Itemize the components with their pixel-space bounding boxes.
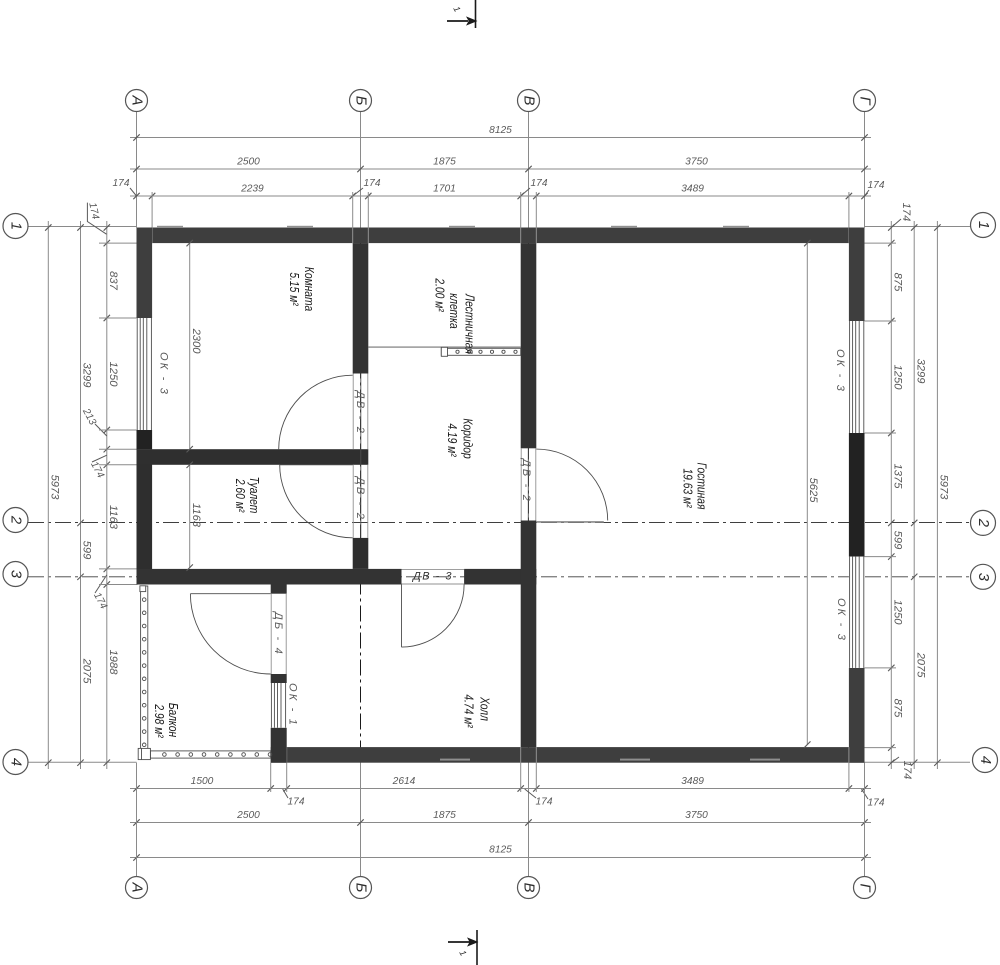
svg-text:2500: 2500 <box>236 810 260 821</box>
svg-text:2239: 2239 <box>240 184 264 195</box>
svg-text:Г: Г <box>857 883 873 892</box>
svg-text:Лестничная: Лестничная <box>462 293 478 354</box>
svg-text:ОК - 3: ОК - 3 <box>835 598 847 642</box>
svg-text:174: 174 <box>288 797 305 808</box>
svg-text:174: 174 <box>364 178 381 189</box>
svg-text:1250: 1250 <box>107 362 119 388</box>
svg-text:1163: 1163 <box>107 505 119 530</box>
svg-text:3489: 3489 <box>681 184 704 195</box>
svg-text:1701: 1701 <box>433 184 456 195</box>
svg-text:174: 174 <box>901 761 913 780</box>
svg-text:1988: 1988 <box>107 650 119 676</box>
svg-text:4.74 м²: 4.74 м² <box>461 694 477 728</box>
svg-text:2: 2 <box>8 515 24 525</box>
svg-text:В: В <box>521 96 537 106</box>
svg-text:ОК - 1: ОК - 1 <box>287 683 299 727</box>
svg-text:174: 174 <box>531 178 548 189</box>
svg-text:174: 174 <box>536 797 553 808</box>
svg-text:Коридор: Коридор <box>460 418 476 459</box>
svg-text:5625: 5625 <box>807 478 819 504</box>
svg-text:2614: 2614 <box>392 776 416 787</box>
svg-text:1: 1 <box>975 221 991 229</box>
svg-text:2300: 2300 <box>190 328 202 355</box>
svg-text:2: 2 <box>975 518 991 528</box>
svg-text:3299: 3299 <box>81 363 93 388</box>
svg-text:1: 1 <box>8 222 24 230</box>
svg-text:599: 599 <box>892 531 904 550</box>
svg-text:875: 875 <box>892 699 904 718</box>
svg-text:2500: 2500 <box>236 157 260 168</box>
svg-text:174: 174 <box>113 178 130 189</box>
svg-text:1875: 1875 <box>433 810 456 821</box>
svg-text:1375: 1375 <box>892 464 904 490</box>
svg-text:А: А <box>129 95 145 106</box>
svg-text:3750: 3750 <box>685 810 708 821</box>
svg-text:4: 4 <box>8 758 24 766</box>
svg-text:174: 174 <box>868 180 885 191</box>
svg-text:ДВ - 2: ДВ - 2 <box>520 457 532 503</box>
svg-text:1500: 1500 <box>191 776 214 787</box>
svg-text:3: 3 <box>975 573 991 582</box>
svg-text:8125: 8125 <box>489 125 512 136</box>
svg-text:3299: 3299 <box>915 359 927 384</box>
svg-text:Б: Б <box>353 883 369 893</box>
svg-text:2075: 2075 <box>81 658 93 685</box>
svg-text:1250: 1250 <box>892 600 904 626</box>
svg-text:Холл: Холл <box>477 696 493 721</box>
svg-text:Комната: Комната <box>302 267 318 312</box>
svg-text:1250: 1250 <box>892 365 904 391</box>
svg-text:8125: 8125 <box>489 845 512 856</box>
svg-text:174: 174 <box>900 203 912 222</box>
svg-text:1163: 1163 <box>190 503 202 528</box>
svg-text:3: 3 <box>8 570 24 579</box>
svg-text:ДВ - 2: ДВ - 2 <box>354 475 366 521</box>
svg-text:5973: 5973 <box>49 475 61 501</box>
svg-text:174: 174 <box>868 798 885 809</box>
svg-text:Б: Б <box>353 96 369 106</box>
svg-text:19.63 м²: 19.63 м² <box>680 468 696 508</box>
svg-text:2.98 м²: 2.98 м² <box>152 703 168 738</box>
svg-text:Г: Г <box>857 96 873 105</box>
svg-text:ОК - 3: ОК - 3 <box>158 352 170 396</box>
svg-text:ДБ - 4: ДБ - 4 <box>272 610 284 656</box>
svg-text:875: 875 <box>892 273 904 292</box>
svg-text:4: 4 <box>977 756 993 764</box>
svg-text:5973: 5973 <box>938 475 950 501</box>
svg-text:клетка: клетка <box>447 293 463 329</box>
svg-text:2075: 2075 <box>915 652 927 679</box>
svg-text:599: 599 <box>81 541 93 560</box>
svg-text:2.00 м²: 2.00 м² <box>432 277 448 312</box>
svg-text:5.15 м²: 5.15 м² <box>287 272 303 306</box>
svg-text:ДВ - 3: ДВ - 3 <box>411 570 453 582</box>
svg-text:3750: 3750 <box>685 157 708 168</box>
svg-text:А: А <box>129 882 145 893</box>
svg-text:3489: 3489 <box>681 776 704 787</box>
svg-text:837: 837 <box>107 271 119 290</box>
svg-text:1875: 1875 <box>433 157 456 168</box>
svg-text:ДВ - 2: ДВ - 2 <box>354 389 366 435</box>
svg-text:ОК - 3: ОК - 3 <box>834 349 846 393</box>
svg-text:4.19 м²: 4.19 м² <box>445 423 461 457</box>
svg-text:В: В <box>521 883 537 893</box>
svg-text:2.60 м²: 2.60 м² <box>233 478 249 513</box>
